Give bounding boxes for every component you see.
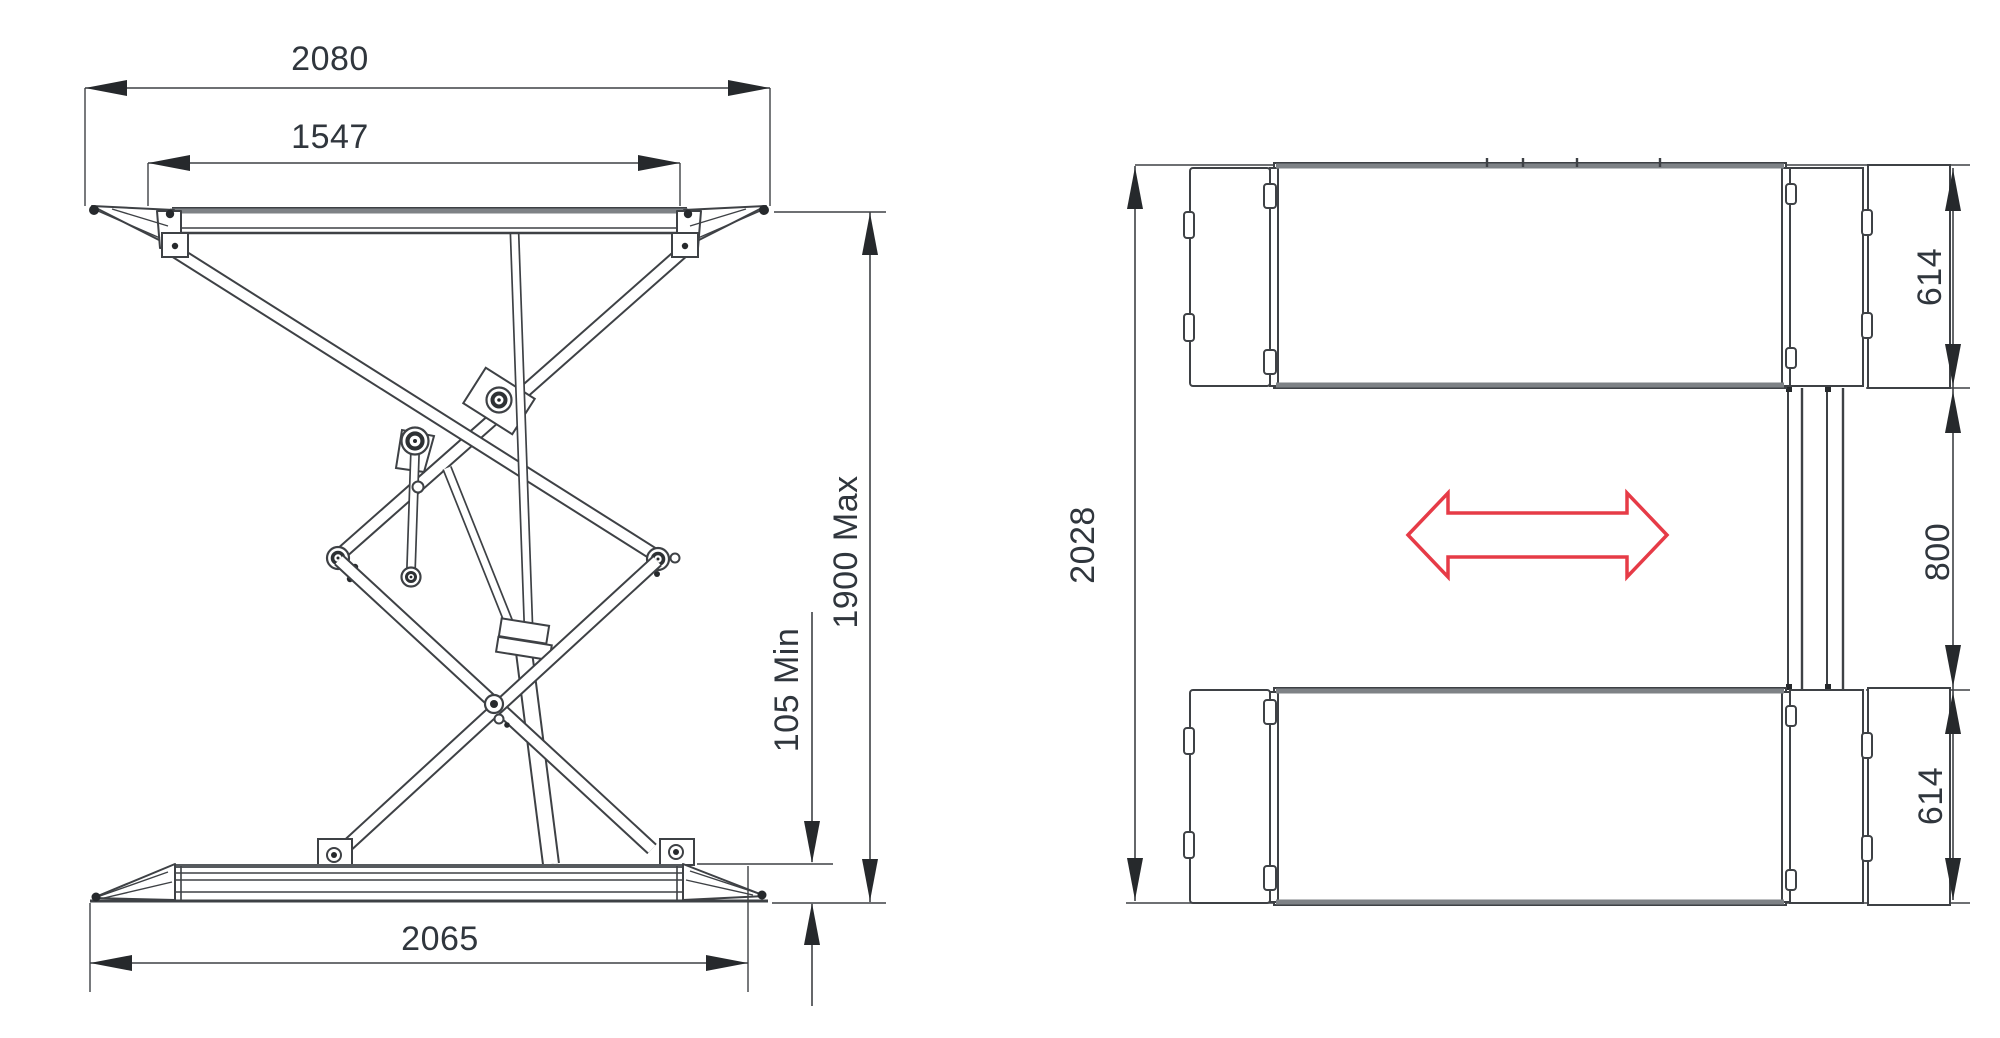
- arrowhead-up-icon: [862, 213, 878, 255]
- arrowhead-down-icon: [804, 821, 820, 863]
- side-top-platform: [89, 205, 769, 257]
- arrowhead-right-icon: [638, 155, 680, 171]
- top-view: 2028 614 800 614: [1064, 158, 1970, 905]
- tv-dim-overall-2028: 2028: [1064, 166, 1143, 901]
- arrowhead-left-icon: [148, 155, 190, 171]
- drive-direction-double-arrow-icon: [1408, 493, 1667, 577]
- tv-top-platform: [1184, 158, 1950, 388]
- side-dim-overall-2080: 2080: [85, 40, 770, 206]
- arrowhead-down-icon: [862, 859, 878, 901]
- side-base-frame: [90, 839, 768, 902]
- arrowhead-up-icon: [1127, 167, 1143, 209]
- tv-top-left-ramp: [1190, 168, 1270, 386]
- side-dim-raised-1900max: 1900 Max: [772, 212, 886, 903]
- side-dim-base-2065: 2065: [90, 866, 748, 992]
- tv-bottom-platform: [1184, 688, 1950, 905]
- side-view: 2080 1547: [85, 40, 886, 1006]
- scissor-upper-x: [168, 247, 688, 558]
- side-dim-lowered-105min: 105 Min: [697, 612, 833, 1006]
- arrowhead-right-icon: [728, 80, 770, 96]
- dim-label-614-top: 614: [1911, 248, 1949, 306]
- tv-connecting-rails: [1786, 386, 1843, 690]
- drawing-canvas: 2080 1547: [0, 0, 2000, 1038]
- arrowhead-down-icon: [1127, 858, 1143, 900]
- side-dim-inner-1547: 1547: [148, 118, 680, 206]
- dim-label-2080: 2080: [291, 40, 369, 78]
- tv-top-right-extension: [1790, 168, 1863, 386]
- tv-top-main-platform: [1274, 163, 1786, 388]
- hydraulic-cylinder: [447, 218, 552, 864]
- arrowhead-left-icon: [85, 80, 127, 96]
- dim-label-800: 800: [1919, 523, 1957, 581]
- tv-dims-right-chain: 614 800 614: [1911, 168, 1961, 900]
- tv-bottom-left-ramp: [1190, 690, 1270, 903]
- dim-label-105min: 105 Min: [768, 628, 806, 752]
- dim-label-614-bottom: 614: [1912, 767, 1950, 825]
- arrowhead-right-icon: [706, 955, 748, 971]
- arrowhead-left-icon: [90, 955, 132, 971]
- dim-label-2028: 2028: [1064, 506, 1102, 584]
- tv-bottom-right-extension: [1790, 690, 1863, 903]
- arrowhead-up-icon: [804, 903, 820, 945]
- dim-label-1900max: 1900 Max: [827, 475, 865, 628]
- dim-label-1547: 1547: [291, 118, 369, 156]
- tv-bottom-main-platform: [1274, 688, 1786, 905]
- scissor-lift-drawing: 2080 1547: [0, 0, 2000, 1038]
- dim-label-2065: 2065: [401, 920, 479, 958]
- scissor-mid-joints: [327, 547, 680, 582]
